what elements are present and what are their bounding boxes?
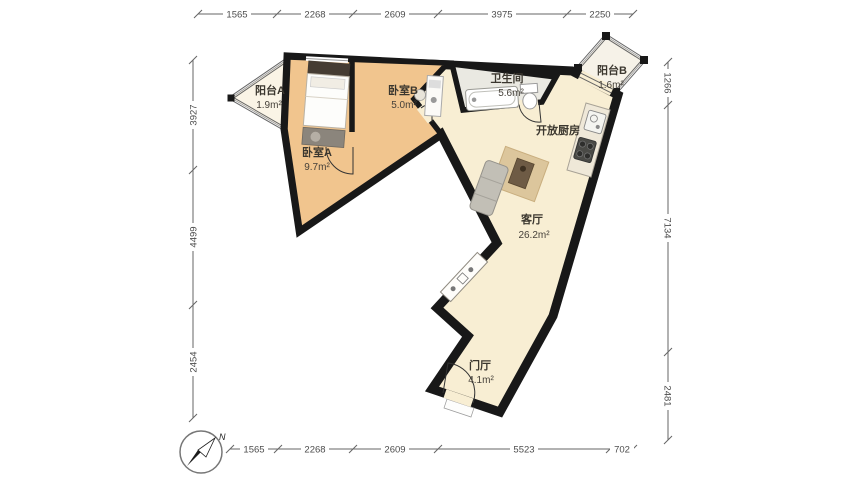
- label-bathroom-name: 卫生间: [491, 71, 524, 85]
- label-balcony-a-area: 1.9m²: [256, 100, 282, 111]
- dim-left-1-group: 4499: [187, 223, 200, 251]
- dim-top-3: 3975: [491, 10, 512, 21]
- desk-item: [429, 80, 442, 89]
- dresser: [302, 127, 345, 147]
- dim-left-0: 3927: [189, 104, 200, 125]
- label-bedroom-a-name: 卧室A: [302, 145, 332, 159]
- dim-left-2: 2454: [189, 351, 200, 372]
- compass-north-label: N: [219, 432, 226, 442]
- label-balcony-a-name: 阳台A: [255, 83, 285, 97]
- label-bathroom-area: 5.6m²: [498, 88, 524, 99]
- wall-post: [640, 56, 648, 64]
- floor-plan-svg: 阳台A 1.9m² 卧室A 9.7m² 卧室B 5.0m² 卫生间 5.6m² …: [0, 0, 862, 480]
- dim-left-1: 4499: [189, 226, 200, 247]
- label-living-area: 26.2m²: [518, 230, 550, 241]
- wall-post: [228, 95, 235, 102]
- label-kitchen-name: 开放厨房: [536, 123, 580, 137]
- dim-bottom-0: 1565: [243, 445, 264, 456]
- dim-bottom-1: 2268: [304, 445, 325, 456]
- dim-left-0-group: 3927: [187, 101, 200, 129]
- dim-right-2: 2481: [662, 385, 673, 406]
- wall-post: [602, 32, 610, 40]
- label-bedroom-a-area: 9.7m²: [304, 162, 330, 173]
- dim-bottom-3: 5523: [513, 445, 534, 456]
- label-balcony-b-area: 1.6m²: [598, 80, 624, 91]
- dim-top-2: 2609: [384, 10, 405, 21]
- dim-left-2-group: 2454: [187, 348, 200, 376]
- dim-top-0: 1565: [226, 10, 247, 21]
- floor-plan-page: 阳台A 1.9m² 卧室A 9.7m² 卧室B 5.0m² 卫生间 5.6m² …: [0, 0, 862, 480]
- dim-right-0-group: 1266: [662, 69, 675, 97]
- dim-bottom-2: 2609: [384, 445, 405, 456]
- label-bedroom-b-name: 卧室B: [388, 83, 418, 97]
- bed: [302, 60, 350, 147]
- label-living-name: 客厅: [520, 212, 543, 226]
- label-bedroom-b-area: 5.0m²: [391, 100, 417, 111]
- dim-top-4: 2250: [589, 10, 610, 21]
- toilet-bowl: [522, 92, 537, 109]
- label-foyer-name: 门厅: [469, 358, 491, 372]
- dim-bottom-4: 702: [614, 445, 630, 456]
- dim-top-1: 2268: [304, 10, 325, 21]
- label-foyer-area: 4.1m²: [468, 375, 494, 386]
- dim-right-1-group: 7134: [662, 214, 675, 242]
- dim-right-0: 1266: [662, 72, 673, 93]
- label-balcony-b-name: 阳台B: [597, 63, 627, 77]
- dim-right-2-group: 2481: [662, 382, 675, 410]
- dim-right-1: 7134: [662, 217, 673, 238]
